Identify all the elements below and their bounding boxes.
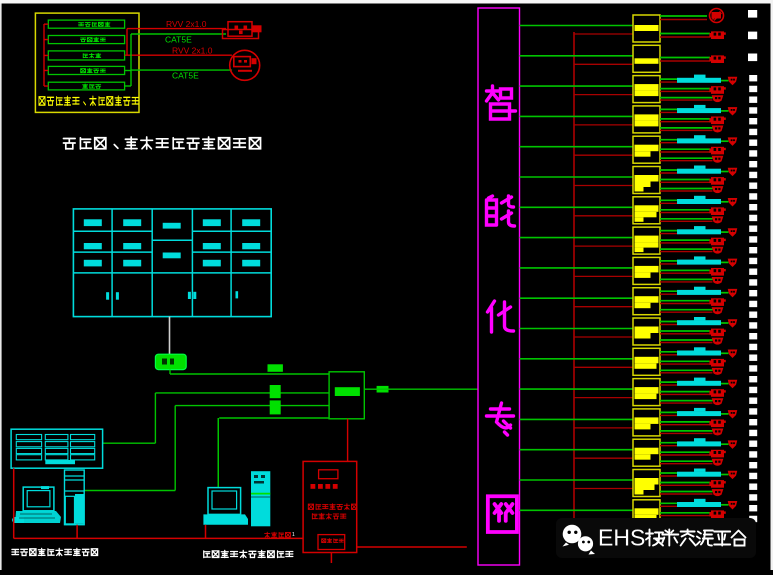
svg-text:CAT5E: CAT5E [172, 71, 199, 81]
svg-text:1: 1 [292, 532, 295, 538]
svg-text:RVV 2x1.0: RVV 2x1.0 [172, 46, 213, 56]
svg-text:RVV 2x1.0: RVV 2x1.0 [166, 19, 207, 29]
svg-text:EHS: EHS [598, 525, 645, 551]
svg-text:CAT5E: CAT5E [165, 35, 192, 45]
